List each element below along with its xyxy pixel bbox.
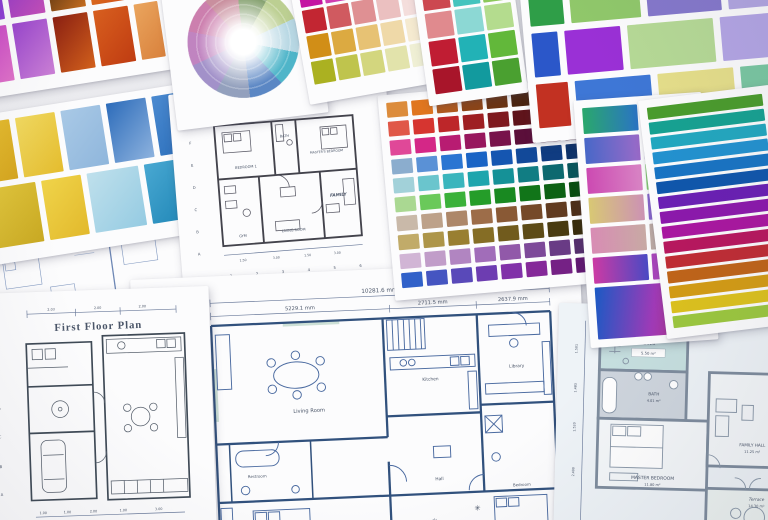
color-swatch xyxy=(428,38,458,67)
grid-letter: B xyxy=(196,230,199,234)
room-label: FAMILY HALL xyxy=(739,442,766,448)
color-swatch xyxy=(531,31,561,77)
color-swatch xyxy=(499,244,521,261)
color-swatch xyxy=(590,224,647,254)
color-swatch xyxy=(466,151,488,168)
color-swatch xyxy=(441,153,463,170)
photo-background: ✳ ✳ 2nd Floor F E D C B A xyxy=(0,0,768,520)
color-swatch xyxy=(487,111,509,128)
dim-label: 2.00 xyxy=(139,304,147,308)
color-swatch xyxy=(484,2,514,31)
color-swatch xyxy=(462,113,484,130)
color-swatch xyxy=(564,26,624,75)
fan-icon: ✳ xyxy=(474,503,481,512)
room-label: Terrace xyxy=(749,497,765,502)
area-label: 11.80 m² xyxy=(644,483,661,487)
color-swatch xyxy=(462,62,492,91)
dim-label: 2.03 xyxy=(47,307,55,311)
color-swatch xyxy=(536,82,572,129)
color-swatch xyxy=(60,105,109,171)
color-swatch xyxy=(588,194,645,224)
dim-label: 1.483 xyxy=(573,383,577,392)
area-label: 4.01 m² xyxy=(647,399,662,403)
dim-label: 3.00 xyxy=(334,251,341,256)
color-swatch xyxy=(424,250,446,267)
color-swatch xyxy=(360,50,386,76)
room-label: Bedroom xyxy=(513,482,531,488)
dim-label: 2711.5 mm xyxy=(418,299,448,306)
color-swatch xyxy=(331,28,357,54)
grid-letter: B xyxy=(0,465,3,469)
color-swatch xyxy=(15,112,64,178)
color-swatch xyxy=(527,0,565,27)
color-swatch xyxy=(86,166,147,233)
color-swatch xyxy=(540,145,562,162)
color-swatch xyxy=(2,0,45,18)
color-swatch xyxy=(438,116,460,133)
grid-letter: E xyxy=(191,164,194,168)
color-swatch xyxy=(521,204,543,221)
color-swatch xyxy=(355,24,381,50)
first-floor-plan-drawing: 2.03 2.00 2.00 First Floor Plan F E D C … xyxy=(0,294,209,520)
color-swatch xyxy=(627,18,717,69)
color-swatch xyxy=(12,18,55,79)
color-swatch xyxy=(720,13,768,61)
grid-number: 6 xyxy=(359,264,362,268)
dim-label: 1.501 xyxy=(574,344,578,353)
color-swatch xyxy=(522,223,544,240)
color-swatch xyxy=(496,206,518,223)
color-swatch xyxy=(472,227,494,244)
color-swatch xyxy=(311,58,337,84)
color-swatch xyxy=(491,149,513,166)
color-swatch xyxy=(469,189,491,206)
color-swatch xyxy=(492,57,522,86)
color-swatch xyxy=(413,118,435,135)
color-swatch xyxy=(396,215,418,232)
color-swatch xyxy=(471,208,493,225)
color-swatch xyxy=(516,147,538,164)
color-swatch xyxy=(476,265,498,282)
color-swatch xyxy=(488,30,518,59)
color-swatch xyxy=(474,246,496,263)
color-swatch xyxy=(425,10,455,39)
color-swatch xyxy=(449,248,471,265)
color-swatch xyxy=(439,135,461,152)
dim-label: 5229.1 mm xyxy=(285,305,315,312)
room-label: Hall xyxy=(435,476,444,482)
color-swatch xyxy=(386,101,408,118)
area-label: 14.30 m² xyxy=(748,504,765,508)
dim-label: 2.00 xyxy=(94,306,102,310)
color-swatch xyxy=(497,225,519,242)
color-swatch xyxy=(524,242,546,259)
color-swatch xyxy=(418,175,440,192)
color-swatch xyxy=(385,45,411,71)
color-swatch xyxy=(414,137,436,154)
color-swatch xyxy=(584,134,641,164)
color-swatch xyxy=(302,7,328,33)
grid-letter: C xyxy=(0,435,2,439)
color-swatch xyxy=(133,1,165,60)
color-swatch xyxy=(41,175,90,241)
room-label: Living Room xyxy=(293,408,325,415)
color-swatch xyxy=(467,170,489,187)
color-swatch xyxy=(446,210,468,227)
color-swatch xyxy=(492,168,514,185)
color-swatch xyxy=(0,0,5,24)
color-swatch xyxy=(419,194,441,211)
dim-label: 1.50 xyxy=(304,253,311,258)
color-swatch xyxy=(326,3,352,29)
color-swatch xyxy=(582,104,639,134)
color-swatch xyxy=(393,177,415,194)
color-swatch xyxy=(0,182,44,250)
first-floor-plan-card: 2.03 2.00 2.00 First Floor Plan F E D C … xyxy=(0,286,217,520)
dim-label: 1.00 xyxy=(64,510,72,514)
color-swatch xyxy=(444,191,466,208)
grid-letter: D xyxy=(0,407,1,411)
color-swatch xyxy=(93,6,136,67)
color-swatch xyxy=(443,172,465,189)
color-wheel xyxy=(181,0,306,104)
color-swatch xyxy=(52,12,95,73)
color-swatch xyxy=(454,6,484,35)
color-swatch xyxy=(421,0,451,11)
color-swatch xyxy=(335,54,361,80)
dim-label: 2.00 xyxy=(90,509,98,513)
color-swatch xyxy=(447,229,469,246)
room-label: BEDROOM 1 xyxy=(235,164,257,170)
color-swatch xyxy=(644,0,722,16)
dim-label: 3.00 xyxy=(273,255,280,260)
color-swatch xyxy=(391,158,413,175)
grid-letter: D xyxy=(193,186,196,190)
color-swatch xyxy=(398,234,420,251)
color-swatch xyxy=(547,220,569,237)
color-swatch xyxy=(451,267,473,284)
dim-label: 2.400 xyxy=(571,467,575,476)
color-swatch xyxy=(544,183,566,200)
color-swatch xyxy=(416,156,438,173)
first-floor-title: First Floor Plan xyxy=(54,319,142,334)
color-swatch xyxy=(106,98,155,164)
color-swatch xyxy=(464,132,486,149)
graduated-columns-card xyxy=(412,0,529,106)
color-swatch xyxy=(306,33,332,59)
color-swatch xyxy=(401,271,423,288)
room-label: BATH xyxy=(280,134,290,139)
dim-label: 1.520 xyxy=(572,422,576,431)
color-swatch xyxy=(376,0,402,21)
color-swatch xyxy=(542,164,564,181)
room-label: LIVING ROOM xyxy=(282,227,306,233)
color-swatch xyxy=(549,239,571,256)
color-swatch xyxy=(380,20,406,46)
dim-label: 10281.6 mm xyxy=(361,287,398,295)
grid-letter: A xyxy=(1,493,4,497)
color-swatch xyxy=(394,196,416,213)
color-swatch xyxy=(399,252,421,269)
color-swatch xyxy=(389,139,411,156)
dim-label: 1.00 xyxy=(120,508,128,512)
color-swatch xyxy=(586,164,643,194)
color-swatch xyxy=(501,263,523,280)
room-label: FAMILY xyxy=(330,191,348,198)
color-swatch xyxy=(568,0,642,23)
color-swatch xyxy=(388,120,410,137)
color-swatch xyxy=(545,202,567,219)
grid-letter: A xyxy=(198,252,201,256)
color-swatch xyxy=(351,0,377,25)
color-swatch xyxy=(494,187,516,204)
color-swatch xyxy=(421,212,443,229)
color-swatch xyxy=(550,258,572,275)
room-label: Kitchen xyxy=(422,376,439,383)
color-swatch xyxy=(593,254,650,284)
color-swatch xyxy=(0,119,18,185)
area-label: 11.25 m² xyxy=(744,450,761,454)
dim-label: 2637.9 mm xyxy=(498,296,528,303)
grid-number: 5 xyxy=(333,266,336,270)
grid-letter: F xyxy=(189,142,191,146)
color-swatch xyxy=(432,66,462,95)
color-swatch xyxy=(458,34,488,63)
area-label: 5.50 m² xyxy=(641,351,656,355)
color-swatch xyxy=(517,166,539,183)
room-label: GYM xyxy=(239,234,247,239)
dim-label: 1.00 xyxy=(39,511,47,515)
color-swatch xyxy=(725,0,768,9)
color-swatch xyxy=(43,0,86,12)
color-swatch xyxy=(423,231,445,248)
room-label: MASTER BEDROOM xyxy=(631,475,674,482)
grid-letter: C xyxy=(194,208,197,212)
color-swatch xyxy=(526,261,548,278)
color-swatch xyxy=(489,130,511,147)
room-label: Library xyxy=(509,363,525,370)
room-label: Restroom xyxy=(248,473,267,479)
color-swatch xyxy=(426,269,448,286)
room-label: MASTER'S BEDROOM xyxy=(310,148,344,155)
color-swatch xyxy=(83,0,126,5)
dim-label: 3.00 xyxy=(155,507,163,511)
dim-label: 1.50 xyxy=(239,258,246,263)
room-label: BATH xyxy=(648,391,659,396)
color-swatch xyxy=(519,185,541,202)
